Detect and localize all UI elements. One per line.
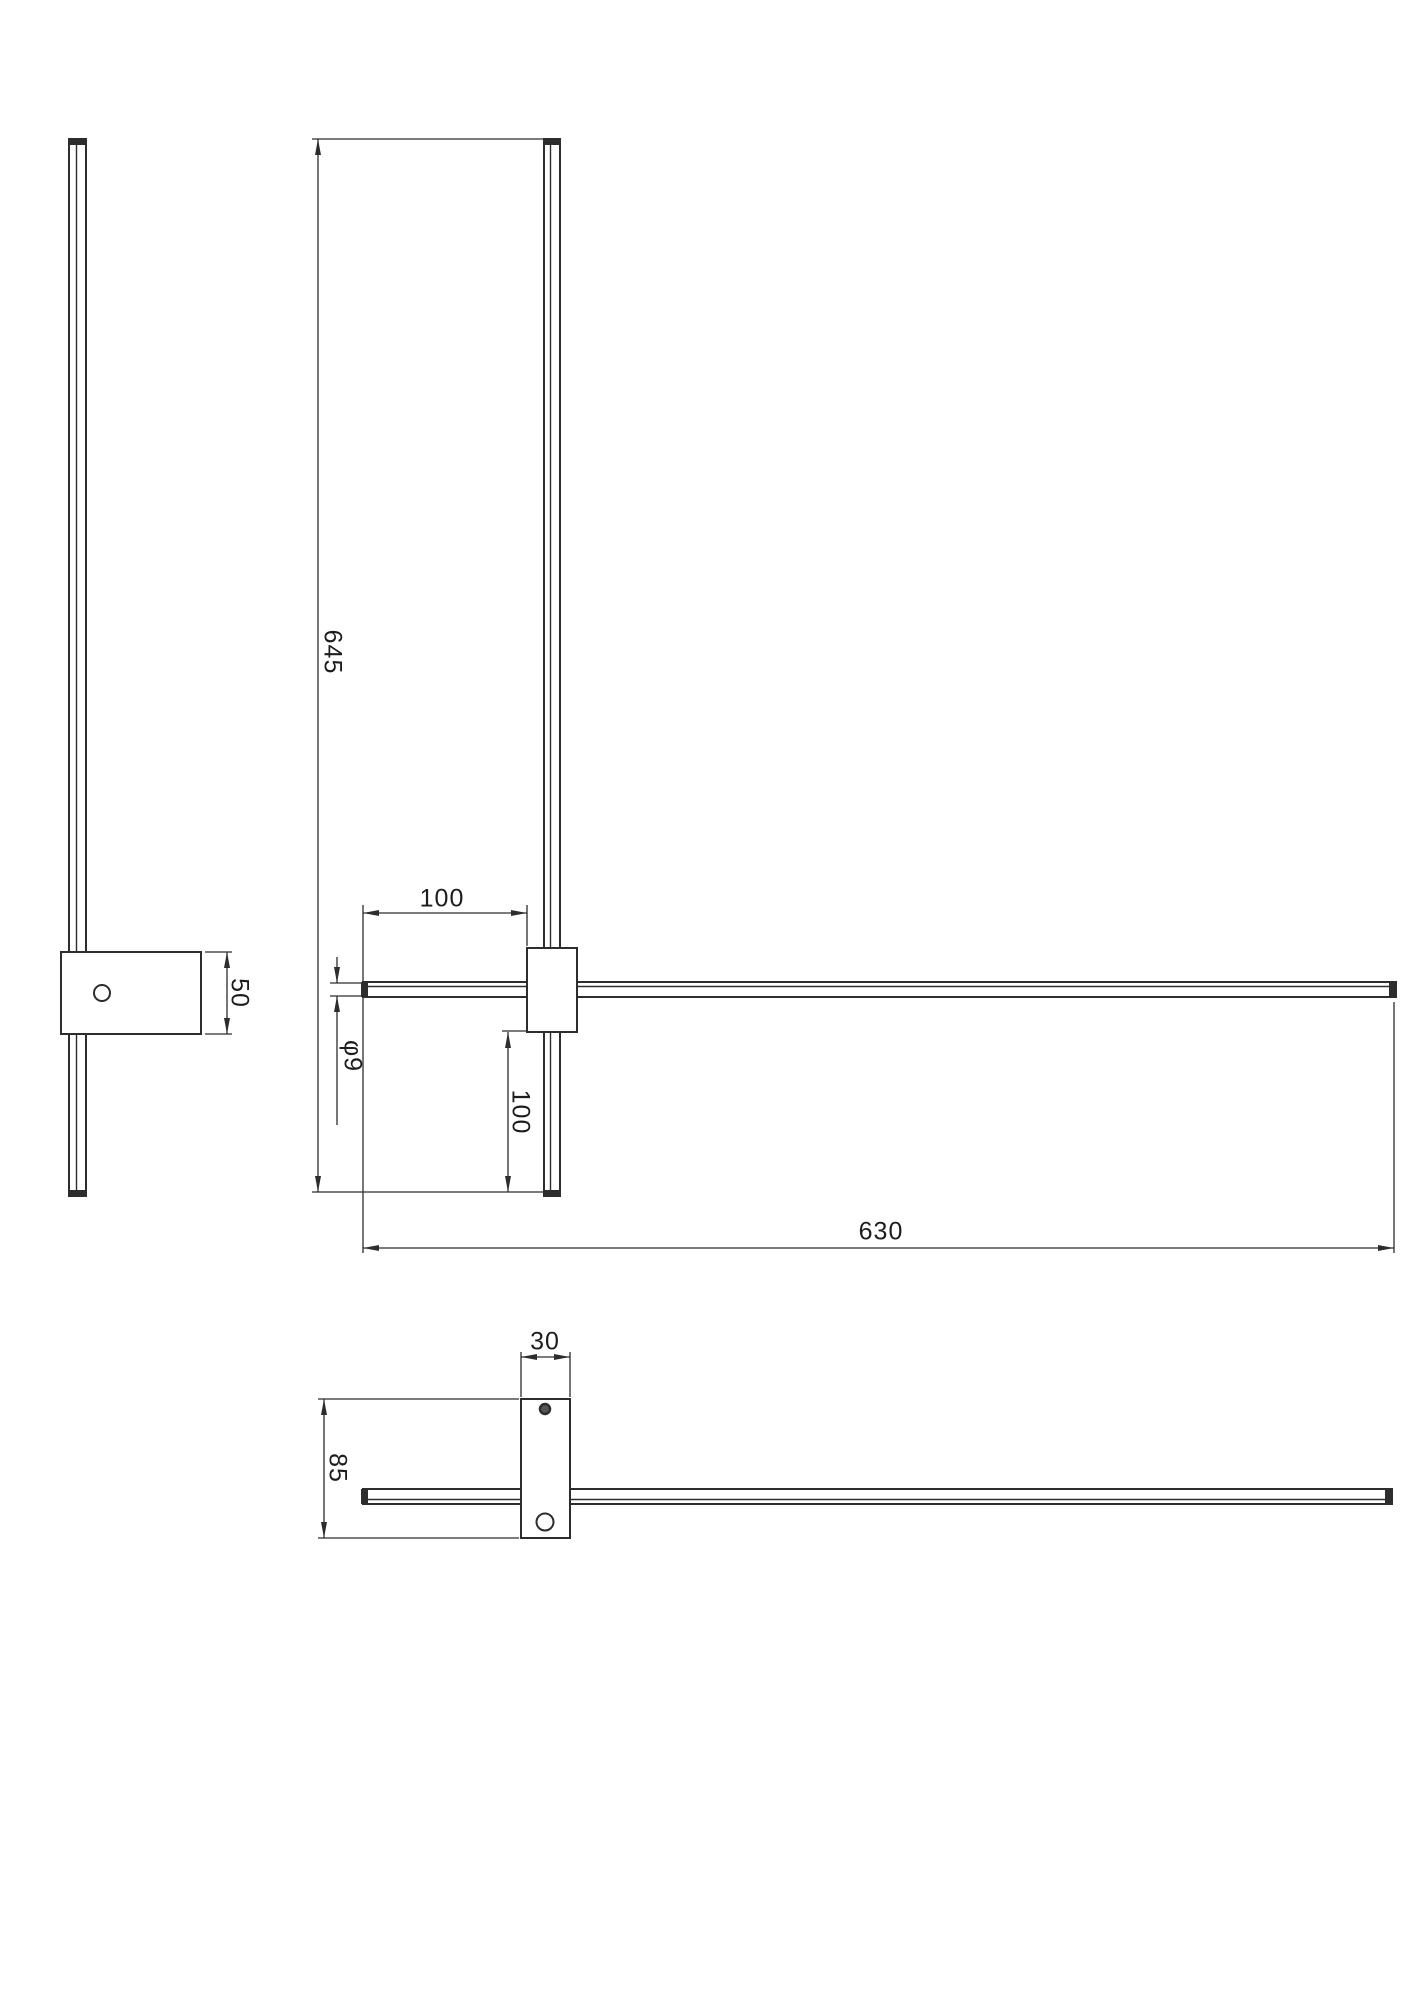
side-view-bar xyxy=(69,139,86,1196)
front-view-mount-box xyxy=(527,948,577,1032)
arrowhead xyxy=(315,139,321,155)
side-view-wall-plate xyxy=(61,952,201,1034)
dim-label-mount-width: 30 xyxy=(530,1330,560,1355)
dim-label-offset-bottom: 100 xyxy=(508,1090,533,1135)
arrowhead xyxy=(321,1522,327,1538)
horizontal-bar-left-cap xyxy=(361,982,368,997)
arrowhead xyxy=(315,1176,321,1192)
dim-label-mount-depth: 85 xyxy=(325,1453,350,1483)
arrowhead xyxy=(321,1399,327,1415)
dim-label-horizontal-bar-length: 630 xyxy=(859,1220,904,1245)
vertical-bar-top-cap xyxy=(544,139,560,145)
dimension-30 xyxy=(521,1352,570,1397)
arrowhead xyxy=(224,1018,230,1034)
bottom-view-bar xyxy=(363,1489,1392,1504)
side-view-bar-top-cap xyxy=(69,139,86,145)
front-view xyxy=(312,139,1396,1253)
dim-label-vertical-bar-length: 645 xyxy=(320,630,345,675)
dim-label-offset-top: 100 xyxy=(420,887,465,912)
arrowhead xyxy=(363,910,379,916)
arrowhead xyxy=(363,1245,379,1251)
bottom-view-bar-left-cap xyxy=(361,1489,368,1504)
bottom-view-screw xyxy=(540,1404,550,1414)
vertical-bar-bottom-cap xyxy=(544,1190,560,1196)
side-view-bar-bottom-cap xyxy=(69,1190,86,1196)
arrowhead xyxy=(505,1176,511,1192)
arrowhead xyxy=(511,910,527,916)
horizontal-bar-right-cap xyxy=(1389,982,1396,997)
bottom-view-screw-hole xyxy=(537,1514,554,1531)
arrowhead xyxy=(334,996,340,1012)
arrowhead xyxy=(1378,1245,1394,1251)
front-view-vertical-bar xyxy=(544,139,560,1196)
side-view xyxy=(61,139,232,1196)
arrowhead xyxy=(334,967,340,983)
bottom-view-bar-right-cap xyxy=(1385,1489,1392,1504)
lamp-dimension-drawing xyxy=(0,0,1413,2000)
technical-drawing-canvas: 50 645 100 φ9 100 630 30 85 xyxy=(0,0,1413,2000)
dim-label-bar-diameter: φ9 xyxy=(340,1040,365,1072)
arrowhead xyxy=(505,1032,511,1048)
front-view-horizontal-bar xyxy=(363,982,1396,997)
arrowhead xyxy=(224,952,230,968)
dimension-645 xyxy=(312,139,545,1192)
dim-label-plate-height: 50 xyxy=(227,978,252,1008)
bottom-view xyxy=(318,1352,1392,1538)
